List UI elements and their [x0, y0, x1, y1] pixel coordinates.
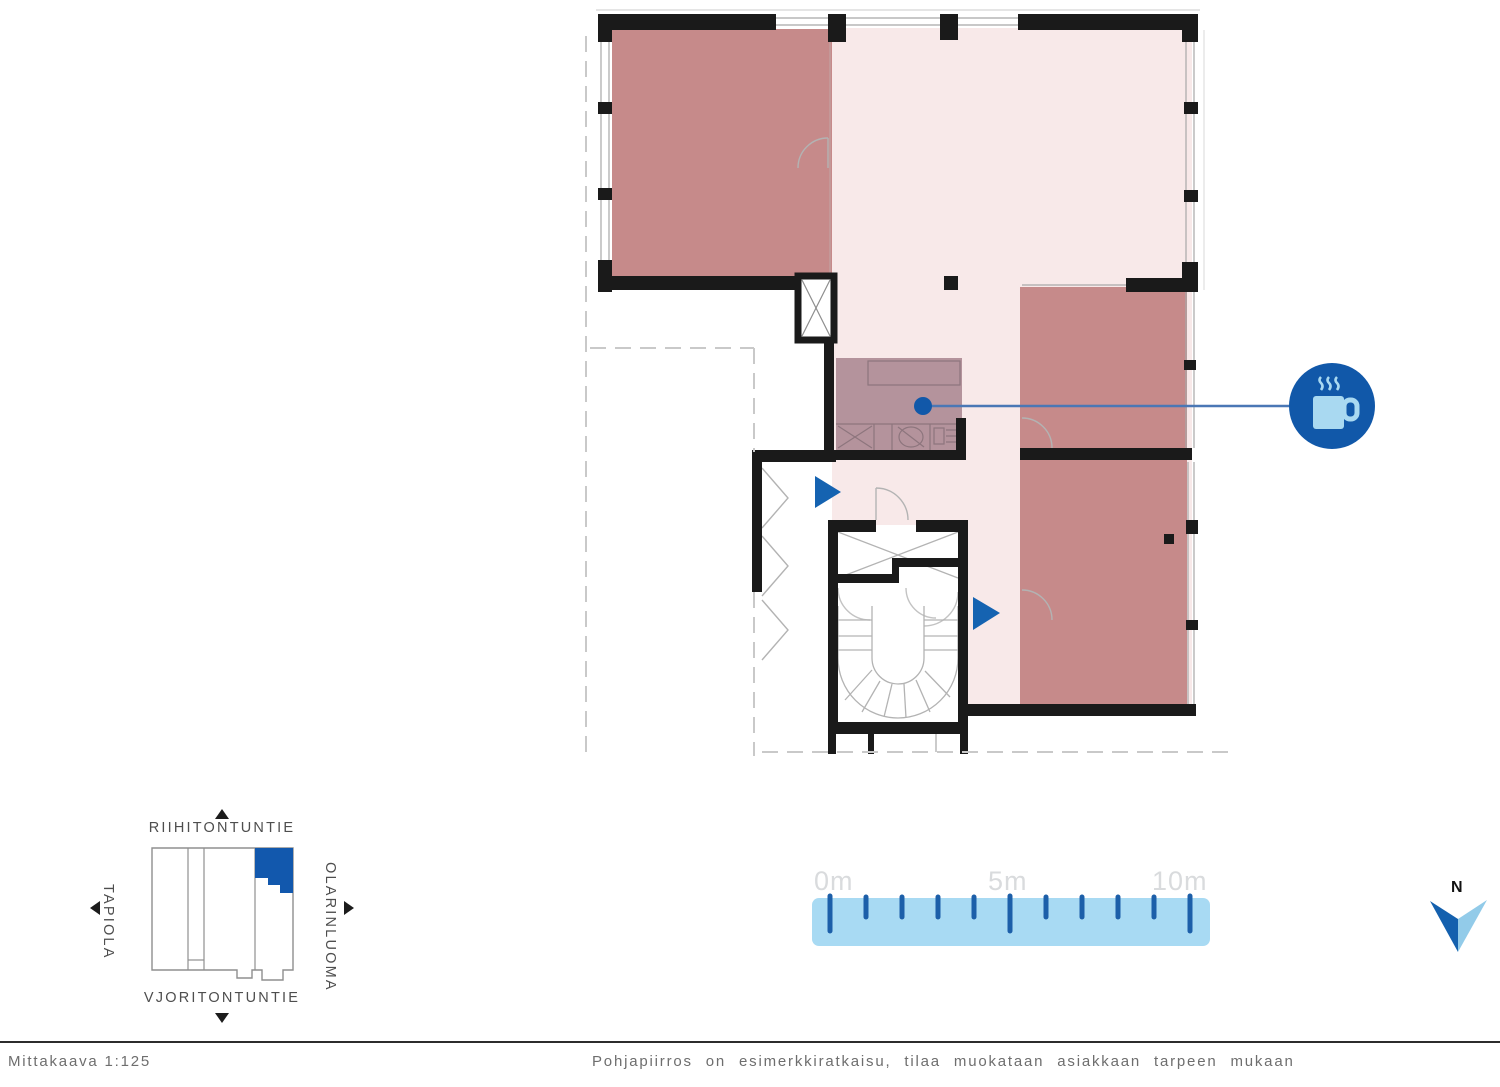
scale-label-0m: 0m [814, 866, 854, 897]
room-right-lower [1020, 458, 1187, 704]
scale-bar [812, 896, 1210, 946]
coffee-cup-icon[interactable] [1289, 363, 1375, 449]
scale-text: Mittakaava 1:125 [8, 1053, 151, 1070]
drawing-canvas [0, 0, 1500, 1087]
disclaimer-text: Pohjapiirros on esimerkkiratkaisu, tilaa… [592, 1053, 1295, 1070]
room-top-left [612, 29, 832, 278]
street-label-bottom: VJORITONTUNTIE [144, 990, 300, 1006]
floor-plan [586, 10, 1375, 758]
floor-plan-page: { "plan": { "hotspot_icon": "coffee-cup-… [0, 0, 1500, 1087]
north-arrow-icon [1430, 900, 1487, 952]
north-label: N [1451, 879, 1463, 897]
street-label-left: TAPIOLA [100, 884, 116, 960]
kitchen-unit [836, 358, 962, 450]
shaft [798, 276, 834, 340]
street-label-right: OLARINLUOMA [322, 862, 338, 992]
room-right-upper [1020, 287, 1187, 450]
scale-label-5m: 5m [988, 866, 1028, 897]
street-label-top: RIIHITONTUNTIE [149, 820, 296, 836]
footer-divider [0, 1041, 1500, 1043]
scale-label-10m: 10m [1152, 866, 1208, 897]
